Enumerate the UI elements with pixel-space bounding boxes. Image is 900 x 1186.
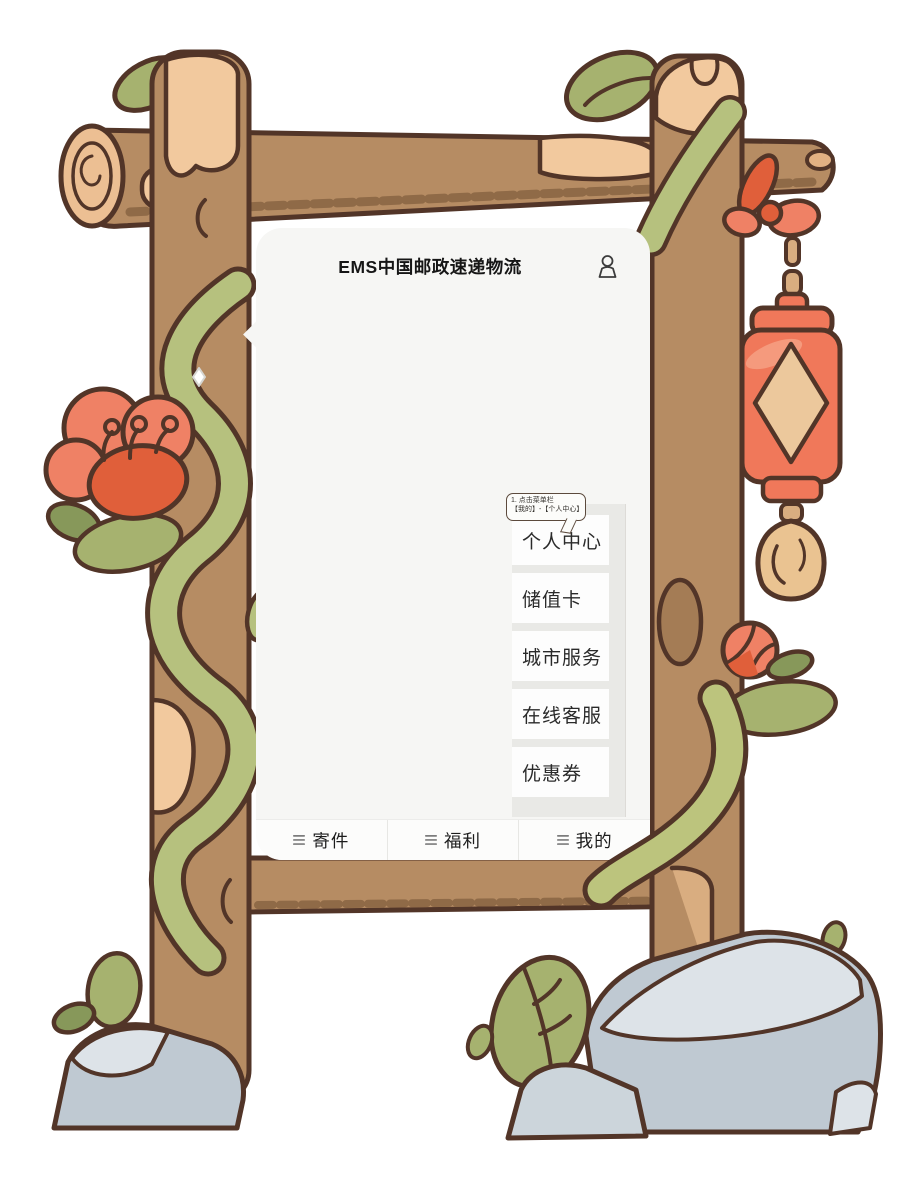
menu-lines-icon <box>293 835 305 845</box>
tab-mine[interactable]: 我的 <box>518 820 650 860</box>
instruction-tooltip: 1. 点击菜单栏 【我的】-【个人中心】 <box>506 493 586 521</box>
tab-send[interactable]: 寄件 <box>256 820 387 860</box>
tab-mine-label: 我的 <box>576 828 613 853</box>
menu-item-personal-center[interactable]: 个人中心 <box>512 515 609 565</box>
official-account-screen: EMS中国邮政速递物流 个人中心 储值卡 城市服务 在线客服 优惠券 1. 点击… <box>256 228 650 860</box>
tab-benefits-label: 福利 <box>444 828 481 853</box>
menu-item-stored-value-card[interactable]: 储值卡 <box>512 573 609 623</box>
person-icon[interactable] <box>597 254 618 279</box>
log-end-icon <box>61 126 123 226</box>
bottom-beam <box>226 858 716 912</box>
menu-lines-icon <box>425 835 437 845</box>
rock-right <box>463 920 880 1138</box>
page-title: EMS中国邮政速递物流 <box>256 254 604 279</box>
menu-item-city-service[interactable]: 城市服务 <box>512 631 609 681</box>
menu-lines-icon <box>557 835 569 845</box>
bottom-menu-bar: 寄件 福利 我的 <box>256 819 650 860</box>
tooltip-line-1: 1. 点击菜单栏 <box>511 496 581 505</box>
tooltip-line-2: 【我的】-【个人中心】 <box>511 505 581 514</box>
app-header: EMS中国邮政速递物流 <box>256 228 650 290</box>
menu-item-online-service[interactable]: 在线客服 <box>512 689 609 739</box>
tab-benefits[interactable]: 福利 <box>387 820 519 860</box>
menu-item-coupon[interactable]: 优惠券 <box>512 747 609 797</box>
tab-send-label: 寄件 <box>312 828 349 853</box>
